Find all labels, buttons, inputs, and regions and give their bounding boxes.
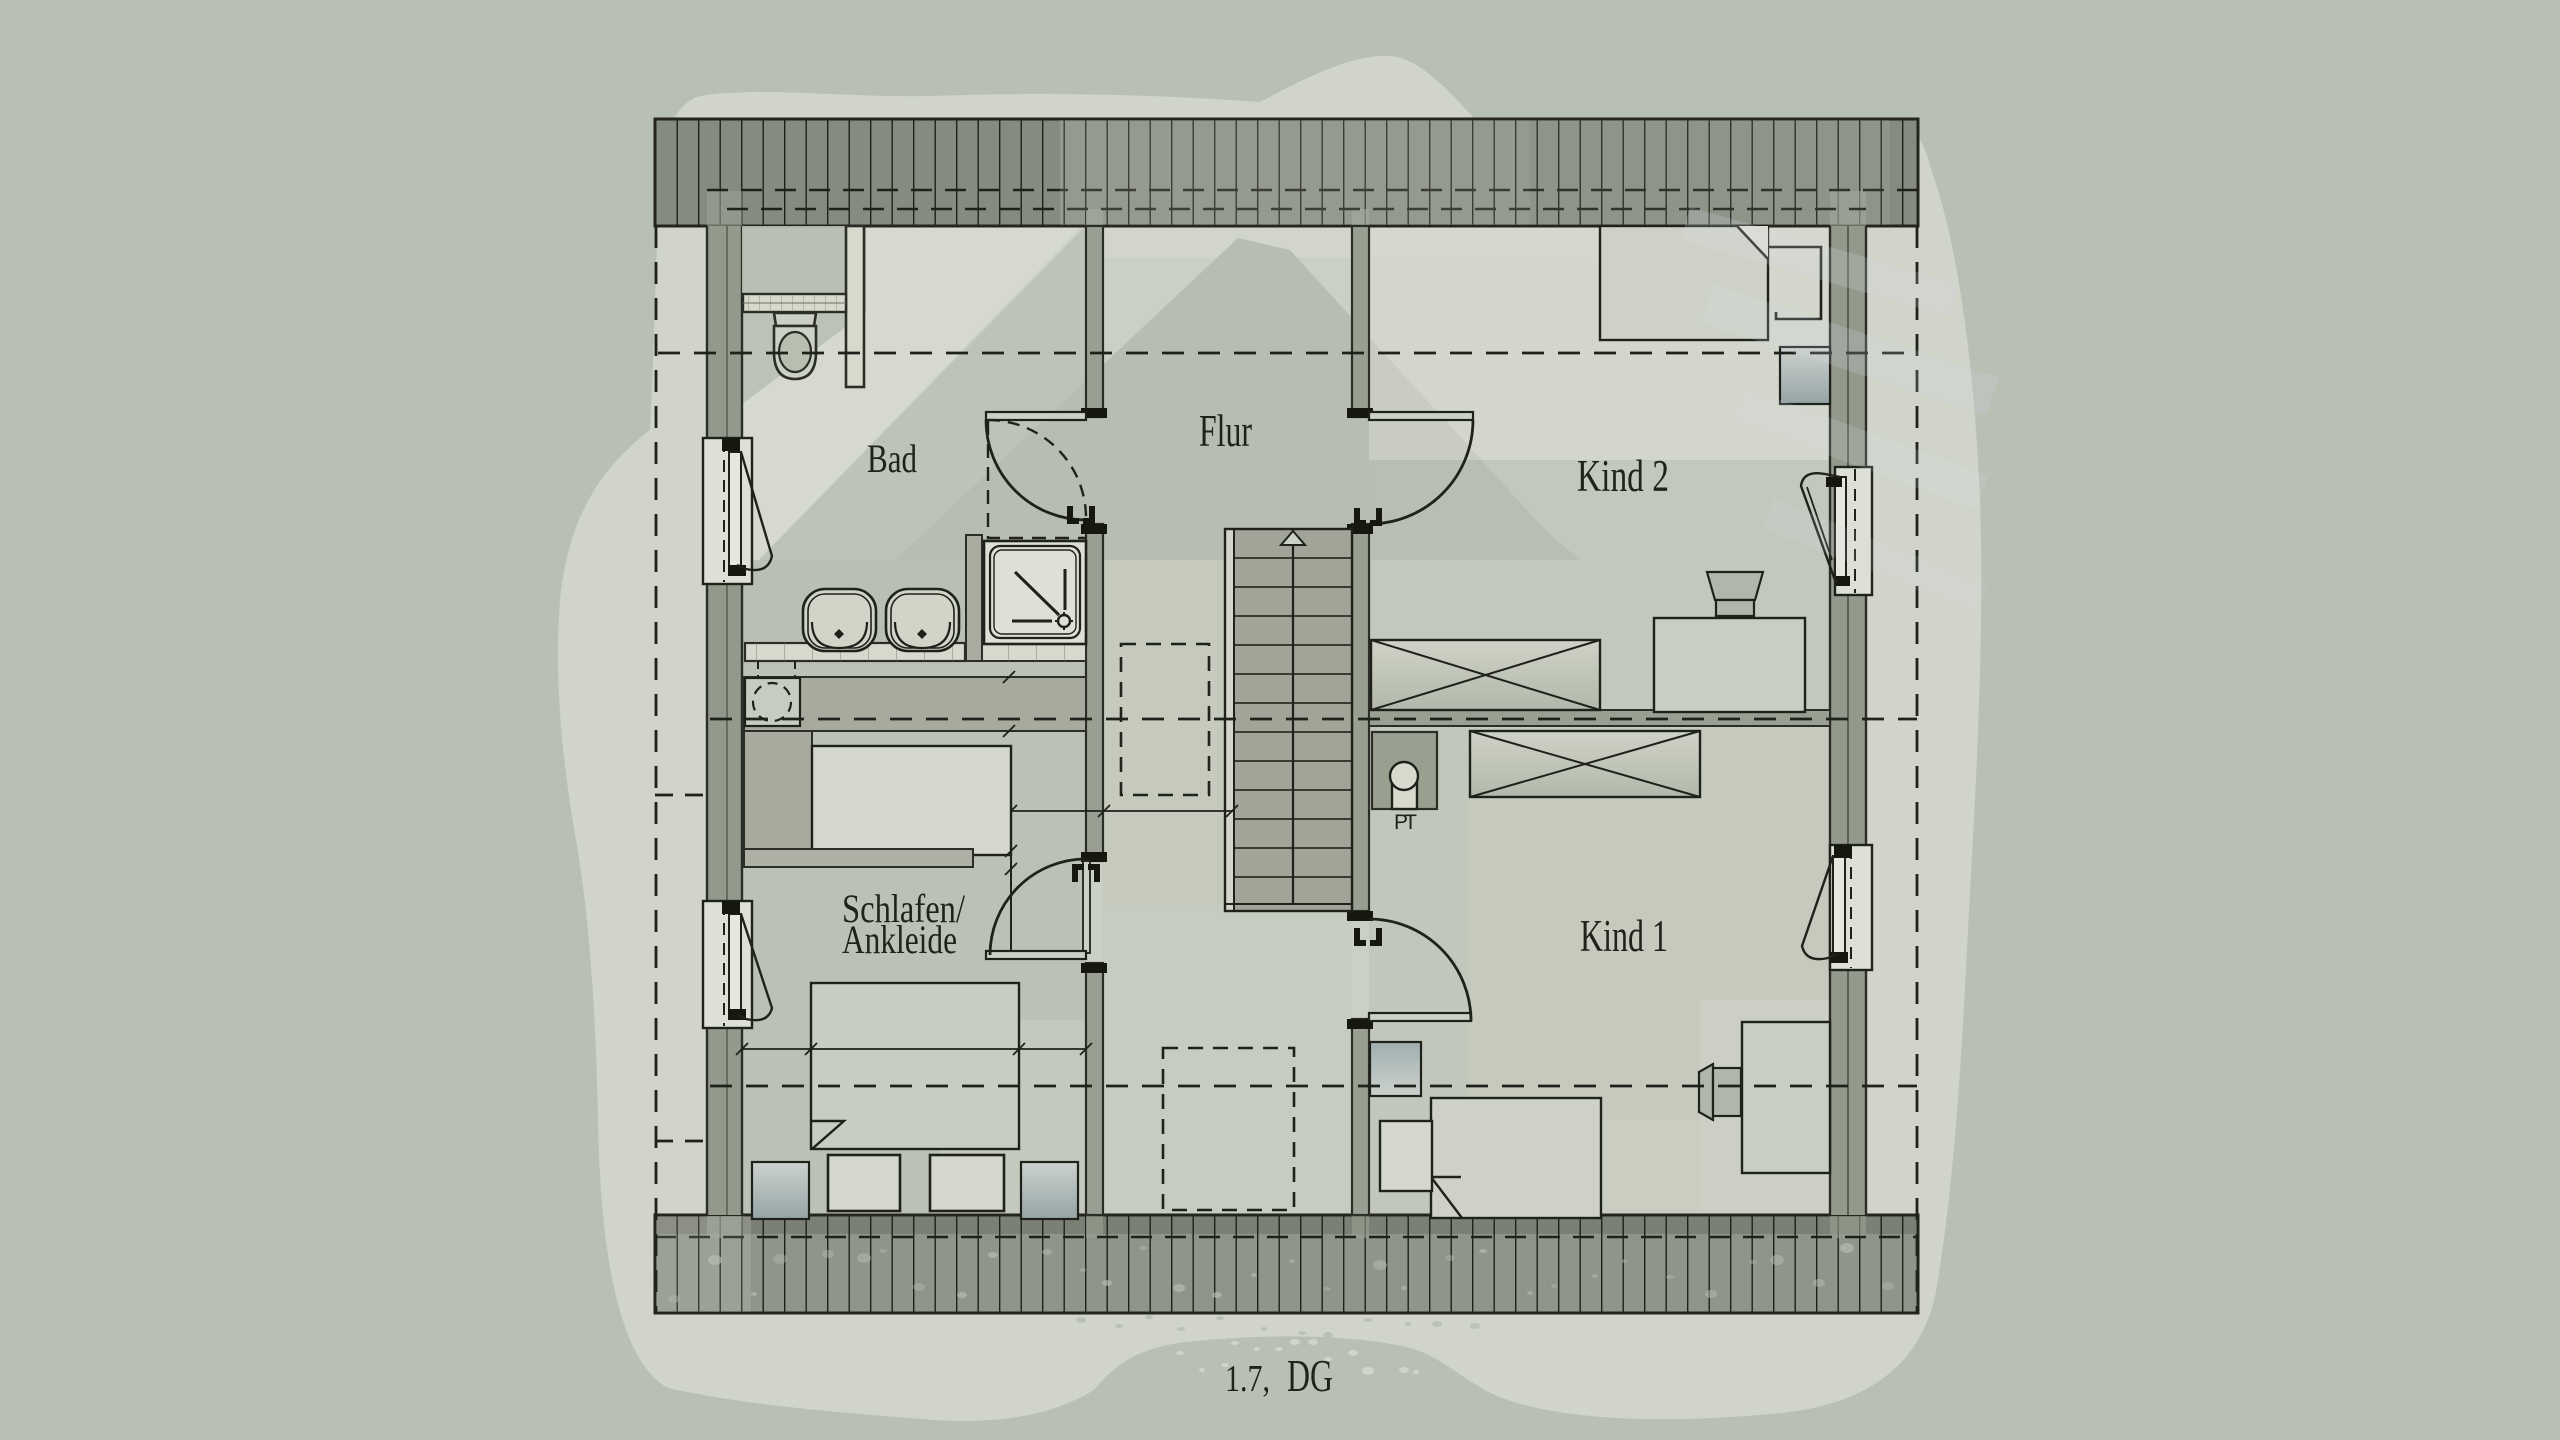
svg-text:Ankleide: Ankleide (842, 917, 957, 962)
svg-text:Bad: Bad (867, 436, 917, 481)
svg-text:PT: PT (1394, 811, 1417, 834)
svg-text:Kind 2: Kind 2 (1577, 451, 1669, 501)
svg-text:1.7,: 1.7, (1225, 1358, 1270, 1400)
svg-text:Flur: Flur (1199, 406, 1252, 456)
svg-text:Kind 1: Kind 1 (1580, 911, 1668, 961)
